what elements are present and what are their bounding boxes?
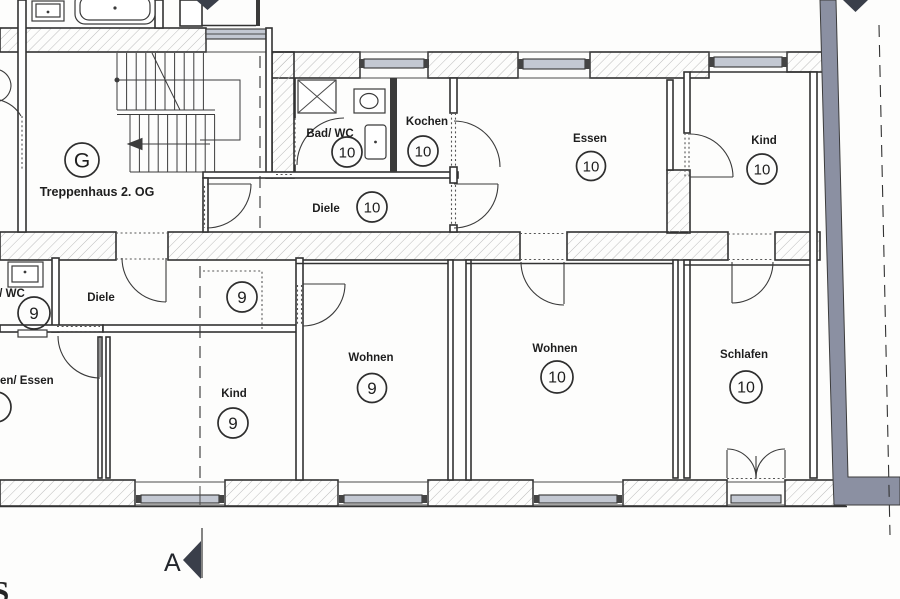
- room-labels: G Treppenhaus 2. OG Bad/ WC 10 Kochen 10…: [0, 116, 777, 438]
- door-essen-wohnen10: [520, 234, 567, 306]
- window-bottom-1: [135, 482, 225, 505]
- room-name: / WC: [0, 288, 25, 300]
- room-number: 9: [228, 414, 237, 433]
- radiator: [18, 330, 47, 337]
- room-name: Diele: [312, 203, 340, 215]
- room-name: Wohnen: [348, 352, 393, 364]
- window-essen: [518, 52, 590, 78]
- door-kind10: [685, 133, 733, 178]
- room-number: 10: [754, 162, 771, 179]
- shower: [298, 80, 336, 113]
- bathtub: [75, 0, 155, 24]
- edge-partial-text: S: [0, 574, 9, 599]
- room-diele-9: Diele 9: [87, 282, 257, 312]
- room-kochen-essen-9: en/ Essen: [0, 375, 54, 422]
- room-number: 10: [339, 145, 356, 162]
- room-name: Schlafen: [720, 349, 768, 361]
- door-entry-diele10: [205, 184, 252, 228]
- room-kochen-10: Kochen 10: [406, 116, 448, 166]
- window-bottom-3: [533, 482, 623, 505]
- room-number: 10: [737, 380, 755, 397]
- wc9-sink: [8, 262, 43, 287]
- bath-sink: [32, 1, 64, 21]
- window-treppenhaus: [206, 29, 266, 52]
- wc-sink: [354, 89, 385, 113]
- room-number: G: [74, 150, 90, 173]
- door-wohnen9: [298, 284, 346, 326]
- door-diele10-essen: [452, 184, 499, 228]
- door-treppenhaus-diele9: [116, 233, 168, 302]
- section-label-a: A: [164, 549, 181, 577]
- room-number: 10: [364, 200, 381, 217]
- room-name: en/ Essen: [0, 375, 54, 387]
- room-badwc-10: Bad/ WC 10: [306, 128, 362, 167]
- room-kind-10: Kind 10: [747, 135, 777, 184]
- french-door-schlafen: [727, 449, 785, 479]
- door-kochen-essen: [452, 113, 501, 167]
- room-number: 9: [29, 304, 38, 323]
- room-wohnen-9: Wohnen 9: [348, 352, 393, 403]
- room-wohnen-10: Wohnen 10: [532, 343, 577, 393]
- section-marker-a: A: [164, 528, 202, 579]
- room-schlafen-10: Schlafen 10: [720, 349, 768, 403]
- boundary-dashed-line: [879, 25, 890, 535]
- room-number: 10: [548, 370, 566, 387]
- room-name: Kind: [751, 135, 777, 147]
- room-diele-10: Diele 10: [312, 192, 387, 222]
- window-bottom-2: [338, 482, 428, 505]
- window-kochen: [359, 52, 429, 78]
- toilet: [365, 125, 386, 159]
- room-name: Kind: [221, 388, 247, 400]
- floorplan-drawing: A S G Treppenhaus 2. OG Bad/ WC 10 Koche…: [0, 0, 900, 599]
- room-name: Bad/ WC: [306, 128, 353, 140]
- room-number: 9: [367, 379, 376, 398]
- room-name: Wohnen: [532, 343, 577, 355]
- door-kind10-schlafen: [728, 234, 775, 303]
- dashed-zone-boundary: [203, 271, 262, 330]
- room-name: Kochen: [406, 116, 448, 128]
- room-treppenhaus: G Treppenhaus 2. OG: [40, 143, 155, 199]
- room-number: 9: [237, 288, 246, 307]
- room-number: 10: [583, 159, 600, 176]
- room-kind-9: Kind 9: [218, 388, 248, 438]
- room-number: 10: [415, 144, 432, 161]
- room-name: Treppenhaus 2. OG: [40, 185, 155, 199]
- door-diele9-kochenessen9: [57, 327, 100, 379]
- section-marker-top-right: [843, 0, 868, 12]
- room-name: Essen: [573, 133, 607, 145]
- room-wc-9: / WC 9: [0, 288, 50, 329]
- room-name: Diele: [87, 292, 115, 304]
- floorplan-sheet: A S G Treppenhaus 2. OG Bad/ WC 10 Koche…: [0, 0, 900, 599]
- window-kind: [709, 52, 787, 72]
- room-essen-10: Essen 10: [573, 133, 607, 181]
- stairs: [115, 53, 240, 172]
- window-balcony-door: [727, 482, 785, 505]
